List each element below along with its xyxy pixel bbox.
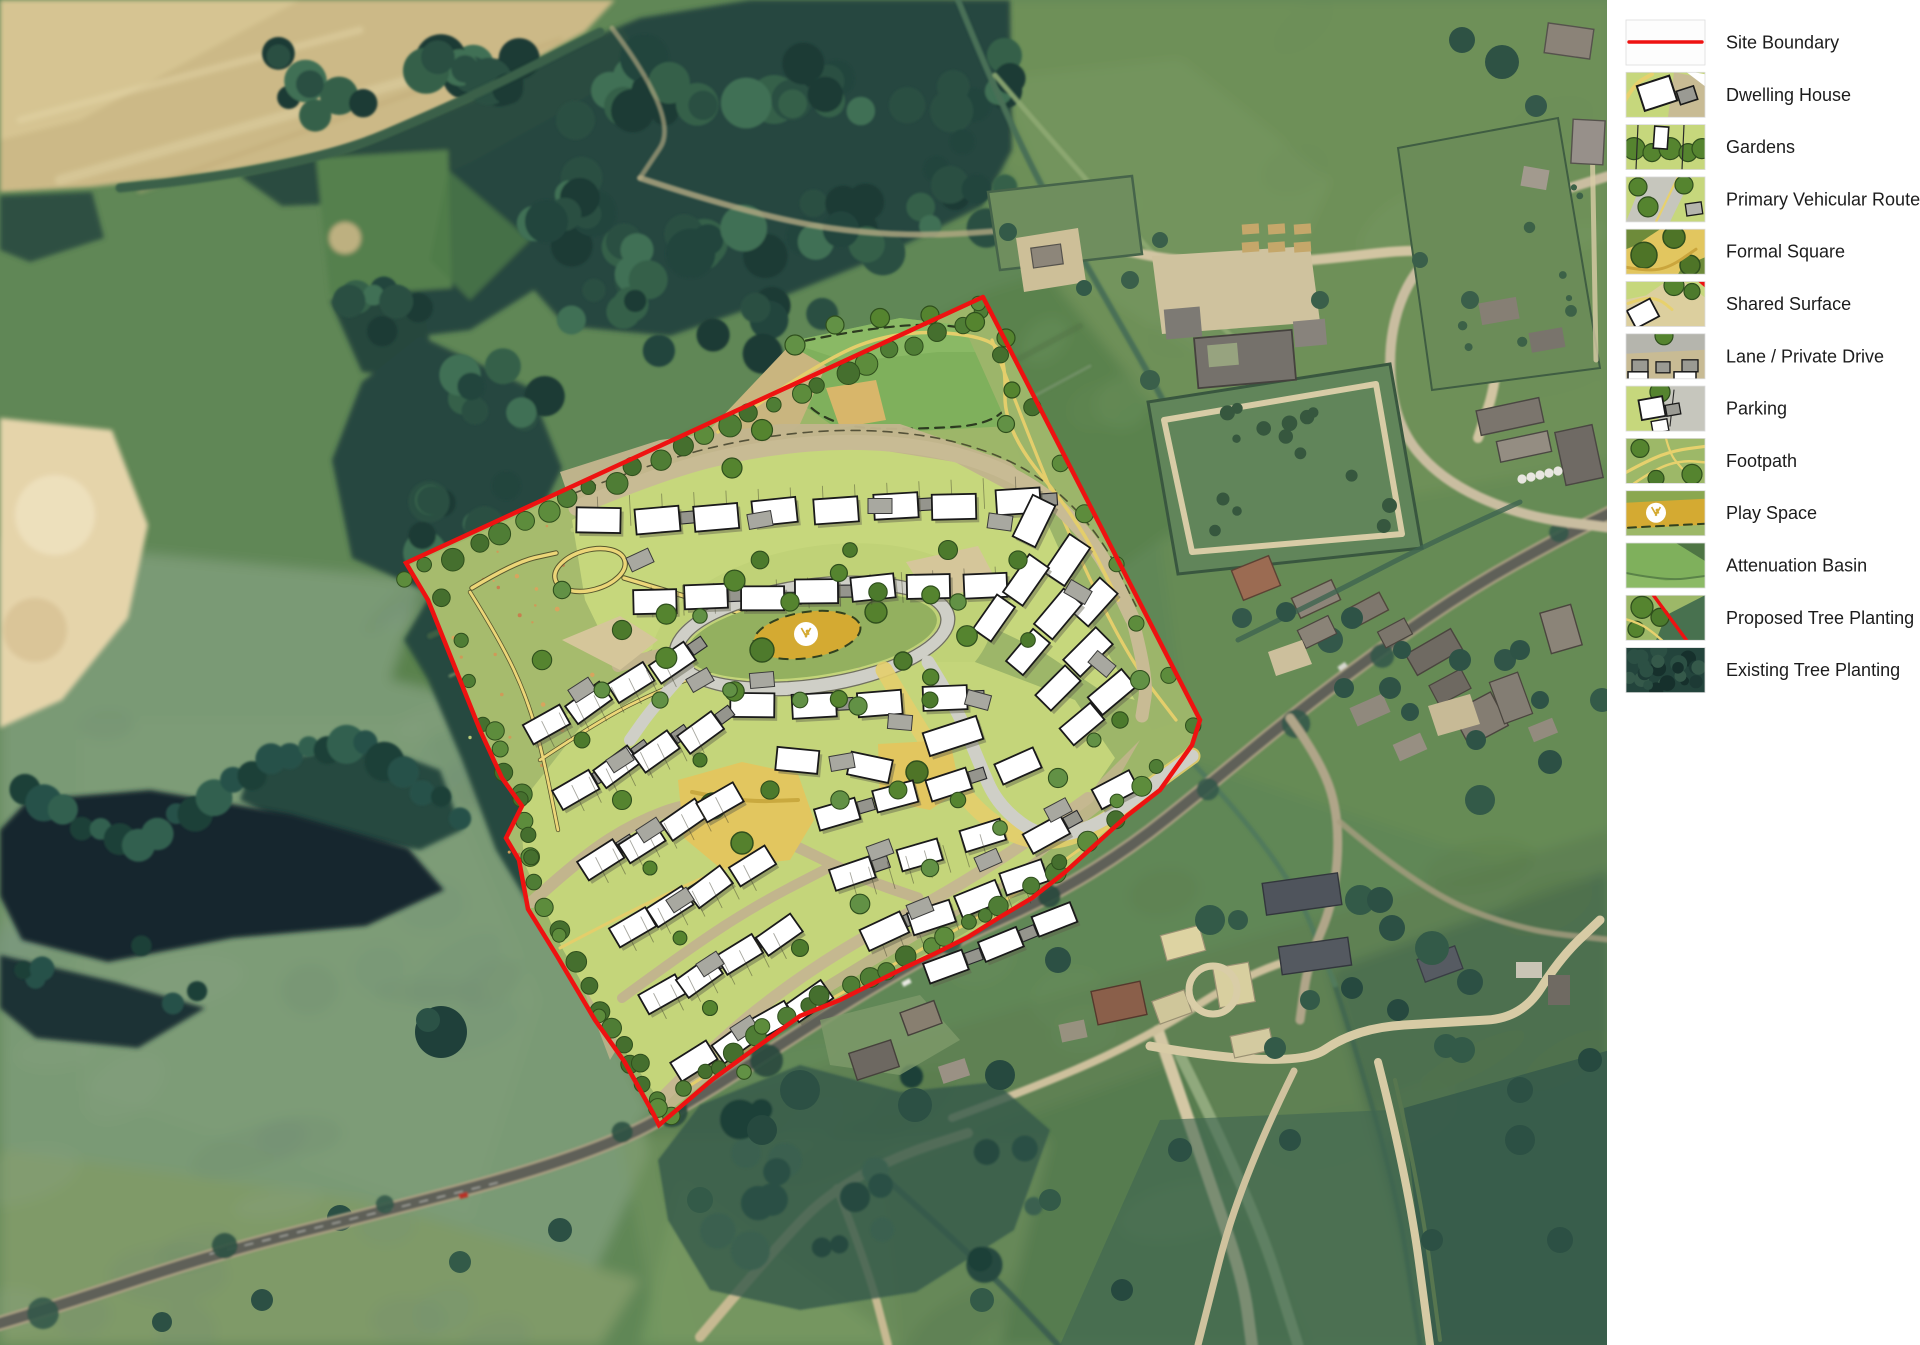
svg-text:Lane / Private Drive: Lane / Private Drive [1726,346,1884,366]
svg-text:Attenuation Basin: Attenuation Basin [1726,556,1867,576]
svg-text:Primary Vehicular Route: Primary Vehicular Route [1726,189,1920,209]
svg-text:Gardens: Gardens [1726,137,1795,157]
svg-text:Formal Square: Formal Square [1726,242,1845,262]
svg-text:Dwelling House: Dwelling House [1726,85,1851,105]
svg-text:Site Boundary: Site Boundary [1726,33,1839,53]
svg-text:Existing Tree Planting: Existing Tree Planting [1726,660,1900,680]
svg-text:Play Space: Play Space [1726,503,1817,523]
svg-text:Parking: Parking [1726,399,1787,419]
svg-text:Footpath: Footpath [1726,451,1797,471]
svg-text:Shared Surface: Shared Surface [1726,294,1851,314]
svg-text:Proposed Tree Planting: Proposed Tree Planting [1726,608,1914,628]
